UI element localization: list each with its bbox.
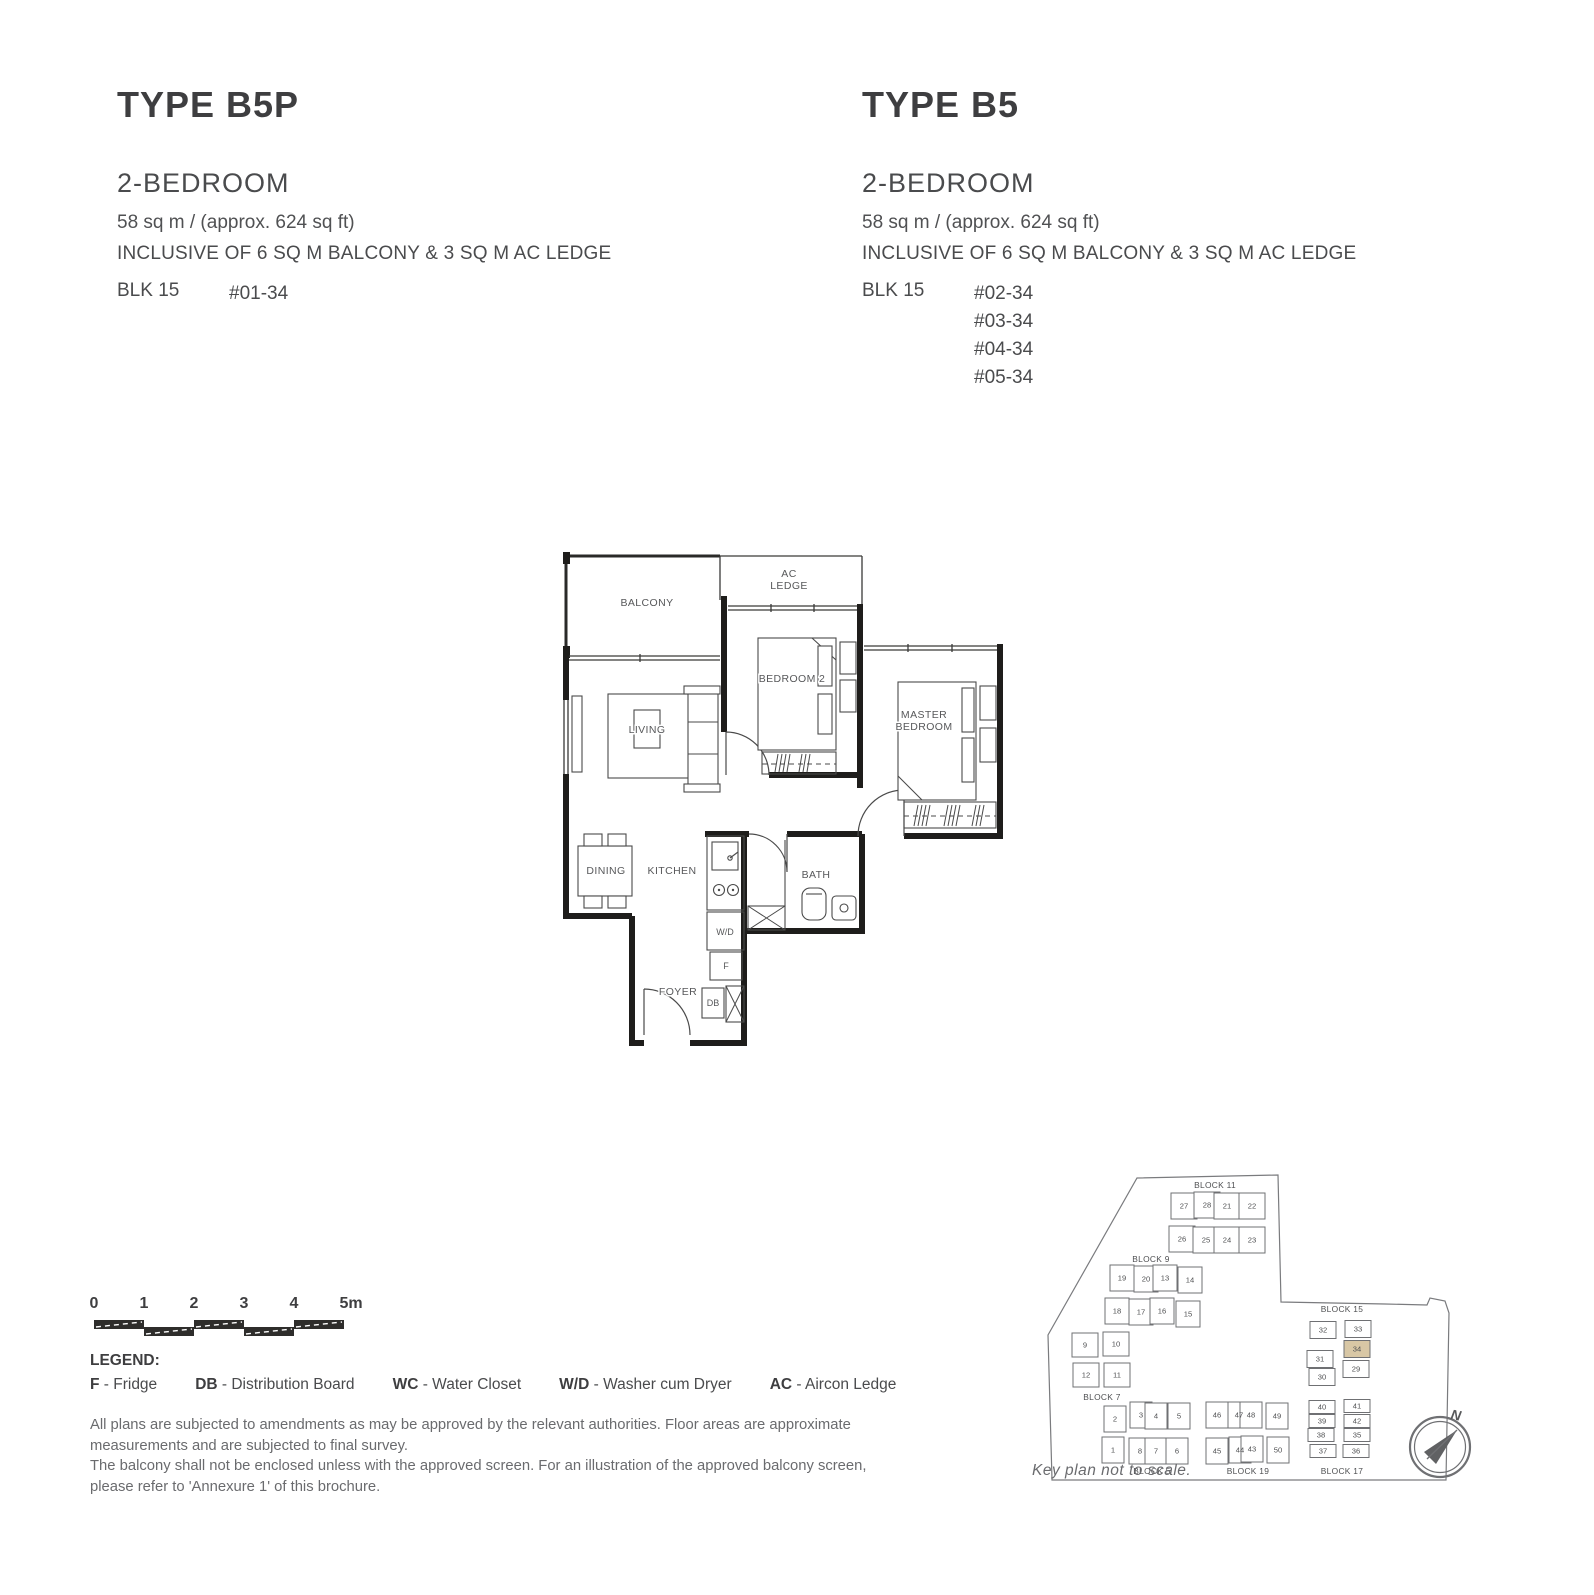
keyplan: 2728212226252423BLOCK 111920131418171615… <box>1025 1148 1475 1493</box>
bedroom-count: 2-BEDROOM <box>862 168 1356 199</box>
keyplan-unit-number-35: 35 <box>1353 1431 1361 1440</box>
keyplan-unit-number-21: 21 <box>1223 1202 1231 1211</box>
disclaimer-line-2: The balcony shall not be enclosed unless… <box>90 1456 912 1497</box>
type-title-b5: TYPE B5 <box>862 84 1356 126</box>
keyplan-block-label: BLOCK 9 <box>1132 1254 1170 1264</box>
scale-tick-3: 3 <box>240 1295 249 1312</box>
stack-item: #03-34 <box>974 308 1033 336</box>
furniture <box>572 638 996 1022</box>
keyplan-unit-number-7: 7 <box>1154 1447 1158 1456</box>
keyplan-unit-number-38: 38 <box>1317 1431 1325 1440</box>
keyplan-unit-number-42: 42 <box>1353 1417 1361 1426</box>
keyplan-unit-number-25: 25 <box>1202 1236 1210 1245</box>
keyplan-unit-number-23: 23 <box>1248 1236 1256 1245</box>
keyplan-unit-number-33: 33 <box>1354 1325 1362 1334</box>
keyplan-unit-number-50: 50 <box>1274 1446 1282 1455</box>
legend-abbr: AC <box>770 1376 792 1393</box>
floorplan-drawing: BALCONY AC LEDGE BEDROOM 2 MASTER BEDROO… <box>552 546 1007 1066</box>
legend-abbr: DB <box>195 1376 217 1393</box>
scale-tick-1: 1 <box>140 1295 149 1312</box>
db-label: DB <box>707 998 720 1008</box>
keyplan-unit-number-20: 20 <box>1142 1275 1150 1284</box>
scale-tick-0: 0 <box>90 1295 99 1312</box>
keyplan-unit-number-4: 4 <box>1154 1412 1158 1421</box>
keyplan-unit-number-11: 11 <box>1113 1371 1121 1380</box>
type-title-b5p: TYPE B5P <box>117 84 611 126</box>
keyplan-unit-number-19: 19 <box>1118 1274 1126 1283</box>
stack-list: #02-34 #03-34 #04-34 #05-34 <box>974 280 1033 392</box>
block-units-row: BLK 15 #02-34 #03-34 #04-34 #05-34 <box>862 280 1356 392</box>
unit-area: 58 sq m / (approx. 624 sq ft) <box>862 212 1356 234</box>
keyplan-unit-number-3: 3 <box>1139 1411 1143 1420</box>
keyplan-unit-number-24: 24 <box>1223 1236 1231 1245</box>
keyplan-unit-number-18: 18 <box>1113 1307 1121 1316</box>
keyplan-unit-number-32: 32 <box>1319 1326 1327 1335</box>
ac-ledge-label-1: AC <box>781 568 796 580</box>
keyplan-unit-number-39: 39 <box>1318 1417 1326 1426</box>
living-label: LIVING <box>629 724 666 736</box>
unit-header-b5: TYPE B5 2-BEDROOM 58 sq m / (approx. 624… <box>862 84 1356 392</box>
keyplan-unit-number-13: 13 <box>1161 1274 1169 1283</box>
keyplan-unit-number-47: 47 <box>1235 1411 1243 1420</box>
stack-item: #05-34 <box>974 364 1033 392</box>
keyplan-unit-number-12: 12 <box>1082 1371 1090 1380</box>
scale-bar: 0 1 2 3 4 5m <box>88 1278 368 1338</box>
legend-desc: - Distribution Board <box>218 1376 355 1393</box>
keyplan-unit-number-49: 49 <box>1273 1412 1281 1421</box>
keyplan-unit-number-44: 44 <box>1236 1446 1244 1455</box>
keyplan-unit-number-26: 26 <box>1178 1235 1186 1244</box>
legend-items: F - Fridge DB - Distribution Board WC - … <box>90 1376 896 1394</box>
balcony-label: BALCONY <box>621 597 674 609</box>
keyplan-block-label: BLOCK 11 <box>1194 1180 1236 1190</box>
keyplan-unit-number-43: 43 <box>1248 1445 1256 1454</box>
legend-desc: - Washer cum Dryer <box>589 1376 731 1393</box>
bath-label: BATH <box>802 869 831 881</box>
ac-ledge-label-2: LEDGE <box>770 580 808 592</box>
keyplan-unit-number-15: 15 <box>1184 1310 1192 1319</box>
keyplan-unit-number-8: 8 <box>1138 1447 1142 1456</box>
legend-item-wd: W/D - Washer cum Dryer <box>559 1376 732 1394</box>
disclaimer-line-1: All plans are subjected to amendments as… <box>90 1415 912 1456</box>
keyplan-unit-number-1: 1 <box>1111 1446 1115 1455</box>
scale-tick-4: 4 <box>290 1295 299 1312</box>
stack-item: #02-34 <box>974 280 1033 308</box>
keyplan-unit-number-27: 27 <box>1180 1202 1188 1211</box>
scale-tick-5: 5m <box>339 1295 362 1312</box>
keyplan-unit-number-34: 34 <box>1353 1345 1361 1354</box>
keyplan-block-label: BLOCK 19 <box>1227 1466 1269 1476</box>
north-compass: N <box>1410 1406 1470 1477</box>
legend-desc: - Water Closet <box>418 1376 521 1393</box>
dining-label: DINING <box>586 865 625 877</box>
keyplan-unit-number-9: 9 <box>1083 1341 1087 1350</box>
bedroom-count: 2-BEDROOM <box>117 168 611 199</box>
keyplan-unit-number-37: 37 <box>1319 1447 1327 1456</box>
keyplan-unit-number-5: 5 <box>1177 1412 1181 1421</box>
stack-item: #01-34 <box>229 280 288 308</box>
keyplan-unit-number-6: 6 <box>1175 1447 1179 1456</box>
legend-item-fridge: F - Fridge <box>90 1376 157 1394</box>
keyplan-unit-number-48: 48 <box>1247 1411 1255 1420</box>
unit-area: 58 sq m / (approx. 624 sq ft) <box>117 212 611 234</box>
keyplan-unit-number-40: 40 <box>1318 1403 1326 1412</box>
keyplan-unit-number-22: 22 <box>1248 1202 1256 1211</box>
keyplan-unit-number-46: 46 <box>1213 1411 1221 1420</box>
unit-header-b5p: TYPE B5P 2-BEDROOM 58 sq m / (approx. 62… <box>117 84 611 308</box>
keyplan-unit-number-45: 45 <box>1213 1447 1221 1456</box>
inclusive-note: INCLUSIVE OF 6 SQ M BALCONY & 3 SQ M AC … <box>862 243 1356 265</box>
inclusive-note: INCLUSIVE OF 6 SQ M BALCONY & 3 SQ M AC … <box>117 243 611 265</box>
wd-label: W/D <box>716 927 734 937</box>
keyplan-unit-number-14: 14 <box>1186 1276 1194 1285</box>
keyplan-units: 2728212226252423BLOCK 111920131418171615… <box>1072 1180 1371 1476</box>
block-units-row: BLK 15 #01-34 <box>117 280 611 308</box>
legend-desc: - Aircon Ledge <box>792 1376 896 1393</box>
legend-abbr: W/D <box>559 1376 589 1393</box>
keyplan-block-label: BLOCK 7 <box>1083 1392 1121 1402</box>
keyplan-unit-number-2: 2 <box>1113 1415 1117 1424</box>
legend-title: LEGEND: <box>90 1352 896 1370</box>
bedroom2-label: BEDROOM 2 <box>759 673 826 685</box>
keyplan-block-label: BLOCK 17 <box>1321 1466 1363 1476</box>
legend-item-db: DB - Distribution Board <box>195 1376 354 1394</box>
keyplan-unit-number-31: 31 <box>1316 1355 1324 1364</box>
master-label-2: BEDROOM <box>895 721 952 733</box>
keyplan-unit-number-30: 30 <box>1318 1373 1326 1382</box>
keyplan-unit-number-16: 16 <box>1158 1307 1166 1316</box>
keyplan-unit-number-17: 17 <box>1137 1308 1145 1317</box>
legend: LEGEND: F - Fridge DB - Distribution Boa… <box>90 1352 896 1394</box>
scale-bar-segments <box>94 1320 344 1336</box>
fridge-label: F <box>723 961 729 971</box>
legend-item-ac: AC - Aircon Ledge <box>770 1376 897 1394</box>
disclaimer: All plans are subjected to amendments as… <box>90 1415 912 1498</box>
foyer-label: FOYER <box>659 986 697 998</box>
kitchen-label: KITCHEN <box>648 865 697 877</box>
stack-item: #04-34 <box>974 336 1033 364</box>
scale-tick-2: 2 <box>190 1295 199 1312</box>
keyplan-unit-number-10: 10 <box>1112 1340 1120 1349</box>
keyplan-caption: Key plan not to scale. <box>1032 1462 1191 1480</box>
legend-abbr: WC <box>393 1376 419 1393</box>
legend-item-wc: WC - Water Closet <box>393 1376 522 1394</box>
site-boundary <box>1048 1175 1449 1480</box>
block-label: BLK 15 <box>117 280 229 308</box>
legend-desc: - Fridge <box>99 1376 157 1393</box>
compass-north-label: N <box>1450 1406 1464 1424</box>
keyplan-unit-number-41: 41 <box>1353 1402 1361 1411</box>
brochure-page: TYPE B5P 2-BEDROOM 58 sq m / (approx. 62… <box>0 0 1594 1595</box>
stack-list: #01-34 <box>229 280 288 308</box>
keyplan-unit-number-29: 29 <box>1352 1365 1360 1374</box>
block-label: BLK 15 <box>862 280 974 392</box>
master-label-1: MASTER <box>901 709 947 721</box>
keyplan-unit-number-36: 36 <box>1352 1447 1360 1456</box>
keyplan-unit-number-28: 28 <box>1203 1201 1211 1210</box>
keyplan-block-label: BLOCK 15 <box>1321 1304 1363 1314</box>
